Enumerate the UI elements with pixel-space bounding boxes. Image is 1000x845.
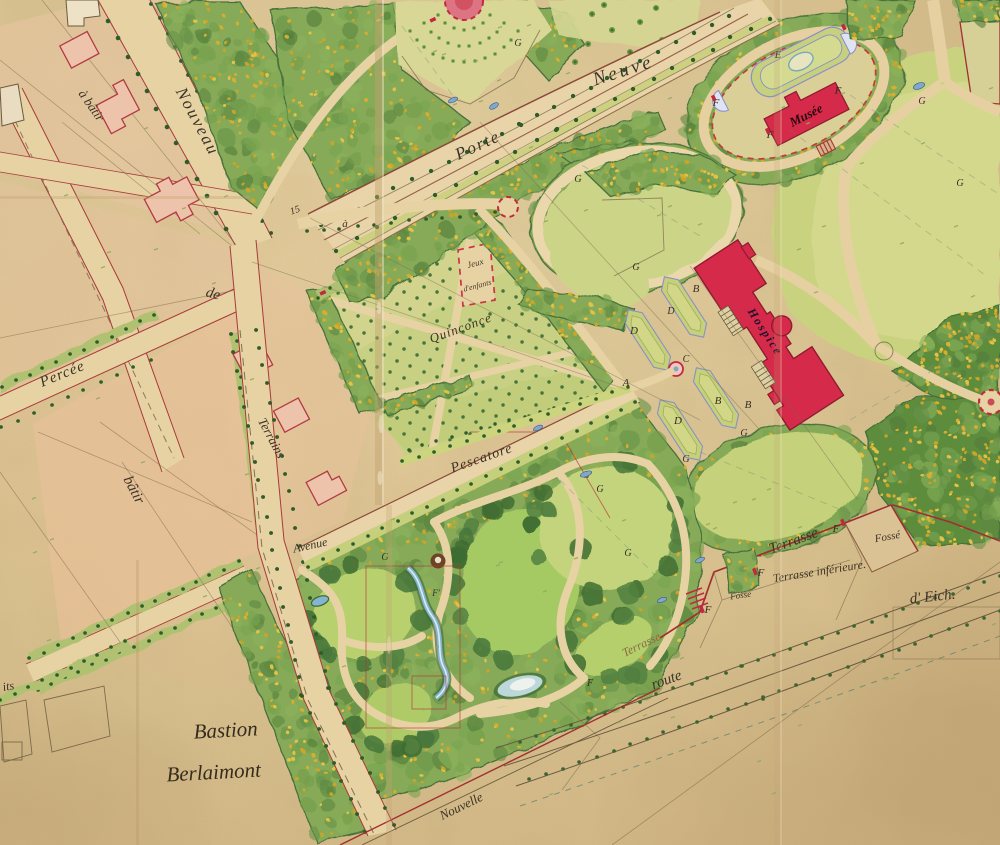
- svg-text:F': F': [431, 588, 440, 598]
- svg-text:Berlaimont: Berlaimont: [166, 757, 263, 786]
- svg-text:G: G: [624, 548, 631, 559]
- svg-text:Bastion: Bastion: [193, 716, 258, 743]
- svg-text:G: G: [956, 178, 963, 189]
- svg-text:F: F: [832, 523, 840, 535]
- svg-text:G: G: [740, 428, 747, 439]
- svg-text:G: G: [596, 484, 603, 495]
- svg-text:F: F: [757, 567, 765, 579]
- svg-text:D: D: [629, 325, 638, 337]
- svg-text:G: G: [514, 38, 521, 49]
- svg-text:à: à: [342, 218, 348, 230]
- svg-text:G: G: [632, 262, 639, 273]
- svg-text:D: D: [673, 415, 682, 427]
- svg-text:F: F: [586, 678, 594, 689]
- svg-text:G: G: [574, 174, 581, 185]
- svg-text:G: G: [682, 454, 689, 465]
- svg-text:F: F: [704, 604, 712, 616]
- svg-text:G: G: [918, 96, 925, 107]
- svg-text:B: B: [745, 399, 752, 411]
- svg-text:B: B: [715, 395, 722, 407]
- svg-text:C: C: [683, 354, 690, 365]
- svg-text:D: D: [666, 306, 675, 317]
- svg-text:B: B: [693, 283, 700, 295]
- svg-text:F: F: [834, 85, 842, 97]
